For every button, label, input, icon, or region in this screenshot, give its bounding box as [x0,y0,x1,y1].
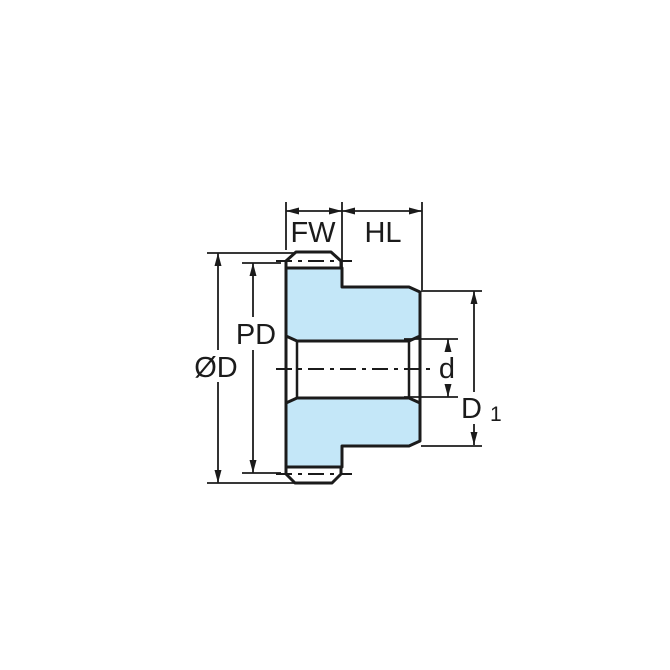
pitch-diameter-label: PD [236,319,276,351]
hub-diameter-label-subscript: 1 [490,403,502,426]
hub-diameter-label: D 1 [461,393,502,426]
hl-arrow-left [342,208,355,215]
pd-arrow-down [250,460,257,473]
gear-lower-body [286,398,420,467]
d1-arrow-down [471,432,478,445]
outside-diameter-label: ØD [194,352,238,384]
face-width-label: FW [290,217,336,249]
od-arrow-down [215,470,222,483]
hub-length-label: HL [364,217,401,249]
hub-diameter-label-main: D [461,393,482,425]
fw-arrow-left [286,208,299,215]
od-arrow-up [215,253,222,266]
pd-arrow-up [250,263,257,276]
hl-arrow-right [409,208,422,215]
drawing-canvas: FW HL PD ØD d D 1 [0,0,670,670]
gear-body [286,252,420,483]
gear-dimension-diagram: FW HL PD ØD d D 1 [0,0,670,670]
gear-upper-body [286,268,420,341]
d1-arrow-up [471,291,478,304]
fw-arrow-right [329,208,342,215]
d-arrow-up [445,339,452,352]
d-arrow-down [445,384,452,397]
bore-diameter-label: d [439,353,455,385]
